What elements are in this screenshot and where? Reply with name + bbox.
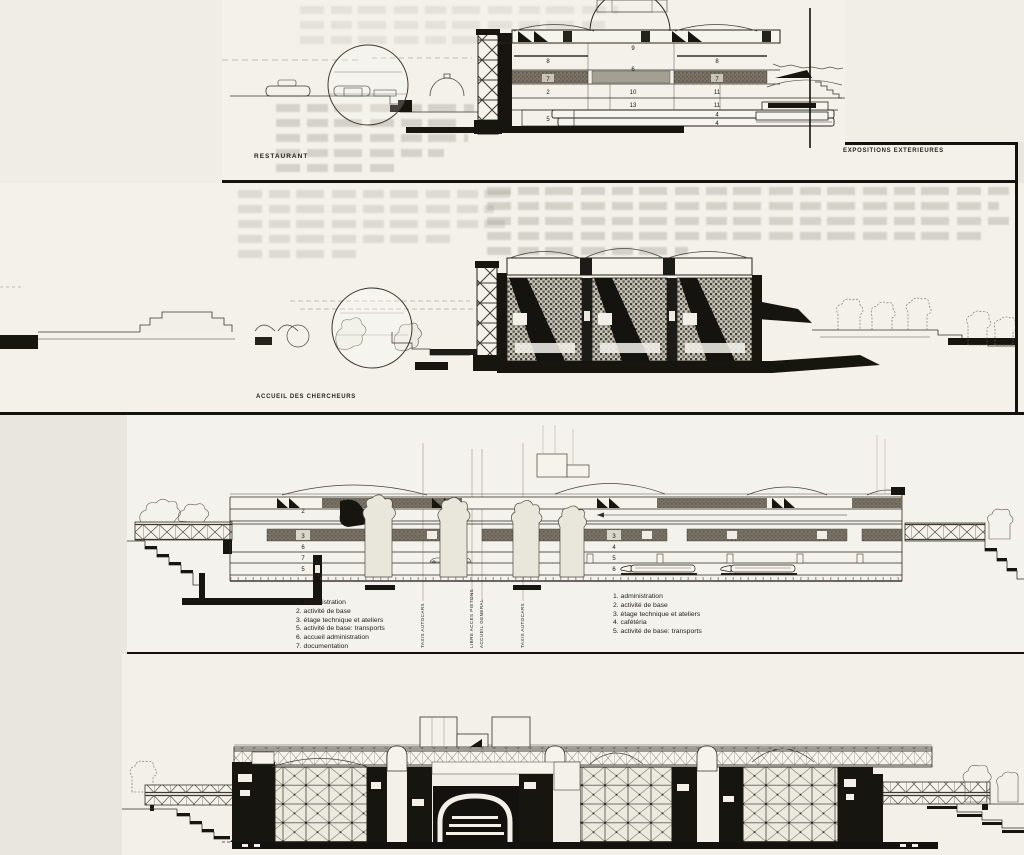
right-terrain-and-bridge (873, 765, 1024, 842)
sphere-dome (328, 45, 408, 125)
section3-drawing: 2 3 6 7 5 3 4 5 6 (127, 415, 1024, 652)
floor-number: 8 (546, 59, 550, 65)
floor-number: 2 (546, 90, 550, 96)
legend-item: 3. étage technique et ateliers (296, 617, 385, 626)
legend-item: 7. documentation (296, 643, 385, 652)
caption-restaurant: RESTAURANT (254, 153, 308, 160)
floor-number: 8 (715, 59, 719, 65)
rule-sheet1-right-edge (809, 8, 811, 148)
legend-item: 1. administration (296, 599, 385, 608)
floor-number: 7 (301, 556, 305, 562)
elevation (232, 717, 938, 849)
rule-sheet2-bottom (0, 412, 1024, 415)
legend-left: 1. administration 2. activité de base 3.… (296, 599, 385, 652)
legend-item: 6. accueil administration (296, 634, 385, 643)
rule-top-sheet-bottom (222, 180, 1018, 183)
rule-expositions-top (845, 142, 1018, 145)
section4-drawing (122, 654, 1024, 855)
caption-accueil-des-chercheurs: ACCUEIL DES CHERCHEURS (256, 394, 356, 400)
lattice-tower (473, 261, 501, 371)
flow-label-accueil-general: ACCUEIL GENERAL (479, 599, 484, 648)
floor-number: 9 (631, 46, 635, 52)
rule-sheet3-bottom (127, 652, 1024, 654)
piers (447, 554, 863, 563)
legend-item: 5. activité de base: transports (296, 625, 385, 634)
small-dome (430, 74, 464, 96)
flow-label-libre-acces-pietons: LIBRE ACCES PIETONS (469, 589, 474, 648)
floor-number: 5 (612, 556, 616, 562)
scanned-architecture-page: 9 8 6 8 7 7 2 10 11 13 11 5 4 4 (0, 0, 1024, 855)
legend-item: 4. cafétéria (613, 619, 702, 628)
floor-number: 11 (714, 90, 721, 96)
floor-number: 11 (714, 103, 721, 109)
sphere-dome (287, 288, 412, 368)
flow-label-taxis-autocars: TAXIS AUTOCARS (520, 603, 525, 648)
page-margin-top-right (845, 0, 1024, 142)
page-margin-top-left (0, 0, 222, 183)
floor-number: 6 (301, 545, 305, 551)
right-bridge-and-steps (905, 509, 1024, 579)
floor-number: 5 (546, 117, 550, 123)
rule-right-edge (1015, 142, 1018, 415)
exhibition-halls (497, 249, 880, 374)
building-long-section (230, 425, 905, 590)
floor-number: 5 (301, 567, 305, 573)
floor-number: 6 (612, 567, 616, 573)
legend-item: 2. activité de base (613, 602, 702, 611)
central-block (420, 717, 580, 842)
caption-expositions-exterieures: EXPOSITIONS EXTERIEURES (843, 148, 944, 154)
terrain-right (812, 298, 1017, 346)
legend-item: 1. administration (613, 593, 702, 602)
trains (621, 565, 797, 575)
section1-drawing: 9 8 6 8 7 7 2 10 11 13 11 5 4 4 (222, 0, 845, 181)
floor-number: 2 (301, 509, 305, 515)
section2-drawing (0, 183, 1024, 412)
flow-label-taxis-autocars: TAXIS AUTOCARS (420, 603, 425, 648)
floor-number: 4 (612, 545, 616, 551)
floor-number: 10 (630, 90, 637, 96)
floor-number: 13 (630, 103, 637, 109)
legend-item: 2. activité de base (296, 608, 385, 617)
legend-item: 5. activité de base: transports (613, 628, 702, 637)
legend-item: 3. étage technique et ateliers (613, 611, 702, 620)
dashed-trees (837, 298, 1017, 345)
lattice-tower (474, 29, 502, 134)
legend-right: 1. administration 2. activité de base 3.… (613, 593, 702, 637)
